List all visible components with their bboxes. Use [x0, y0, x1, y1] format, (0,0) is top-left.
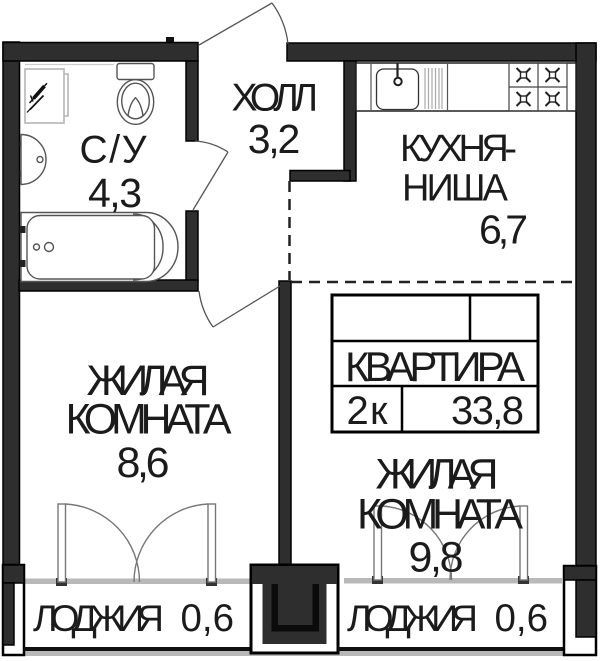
svg-text:0,6: 0,6 [495, 597, 549, 640]
svg-text:2к: 2к [347, 389, 389, 433]
svg-text:КОМНАТА: КОМНАТА [357, 491, 523, 539]
svg-text:КВАРТИРА: КВАРТИРА [345, 343, 525, 390]
svg-text:КУХНЯ-: КУХНЯ- [400, 128, 517, 170]
svg-text:6,7: 6,7 [479, 207, 528, 253]
svg-text:33,8: 33,8 [451, 389, 524, 433]
svg-text:0,6: 0,6 [181, 597, 235, 640]
svg-text:ХОЛЛ: ХОЛЛ [232, 77, 319, 120]
svg-text:3,2: 3,2 [248, 116, 301, 162]
svg-text:ЛОДЖИЯ: ЛОДЖИЯ [33, 597, 164, 639]
svg-text:КОМНАТА: КОМНАТА [66, 396, 232, 444]
svg-text:4,3: 4,3 [88, 170, 142, 216]
svg-text:8,6: 8,6 [117, 439, 170, 487]
svg-text:НИША: НИША [402, 168, 509, 210]
svg-text:9,8: 9,8 [409, 534, 464, 582]
svg-text:С/У: С/У [80, 129, 147, 172]
svg-text:ЛОДЖИЯ: ЛОДЖИЯ [347, 597, 478, 639]
